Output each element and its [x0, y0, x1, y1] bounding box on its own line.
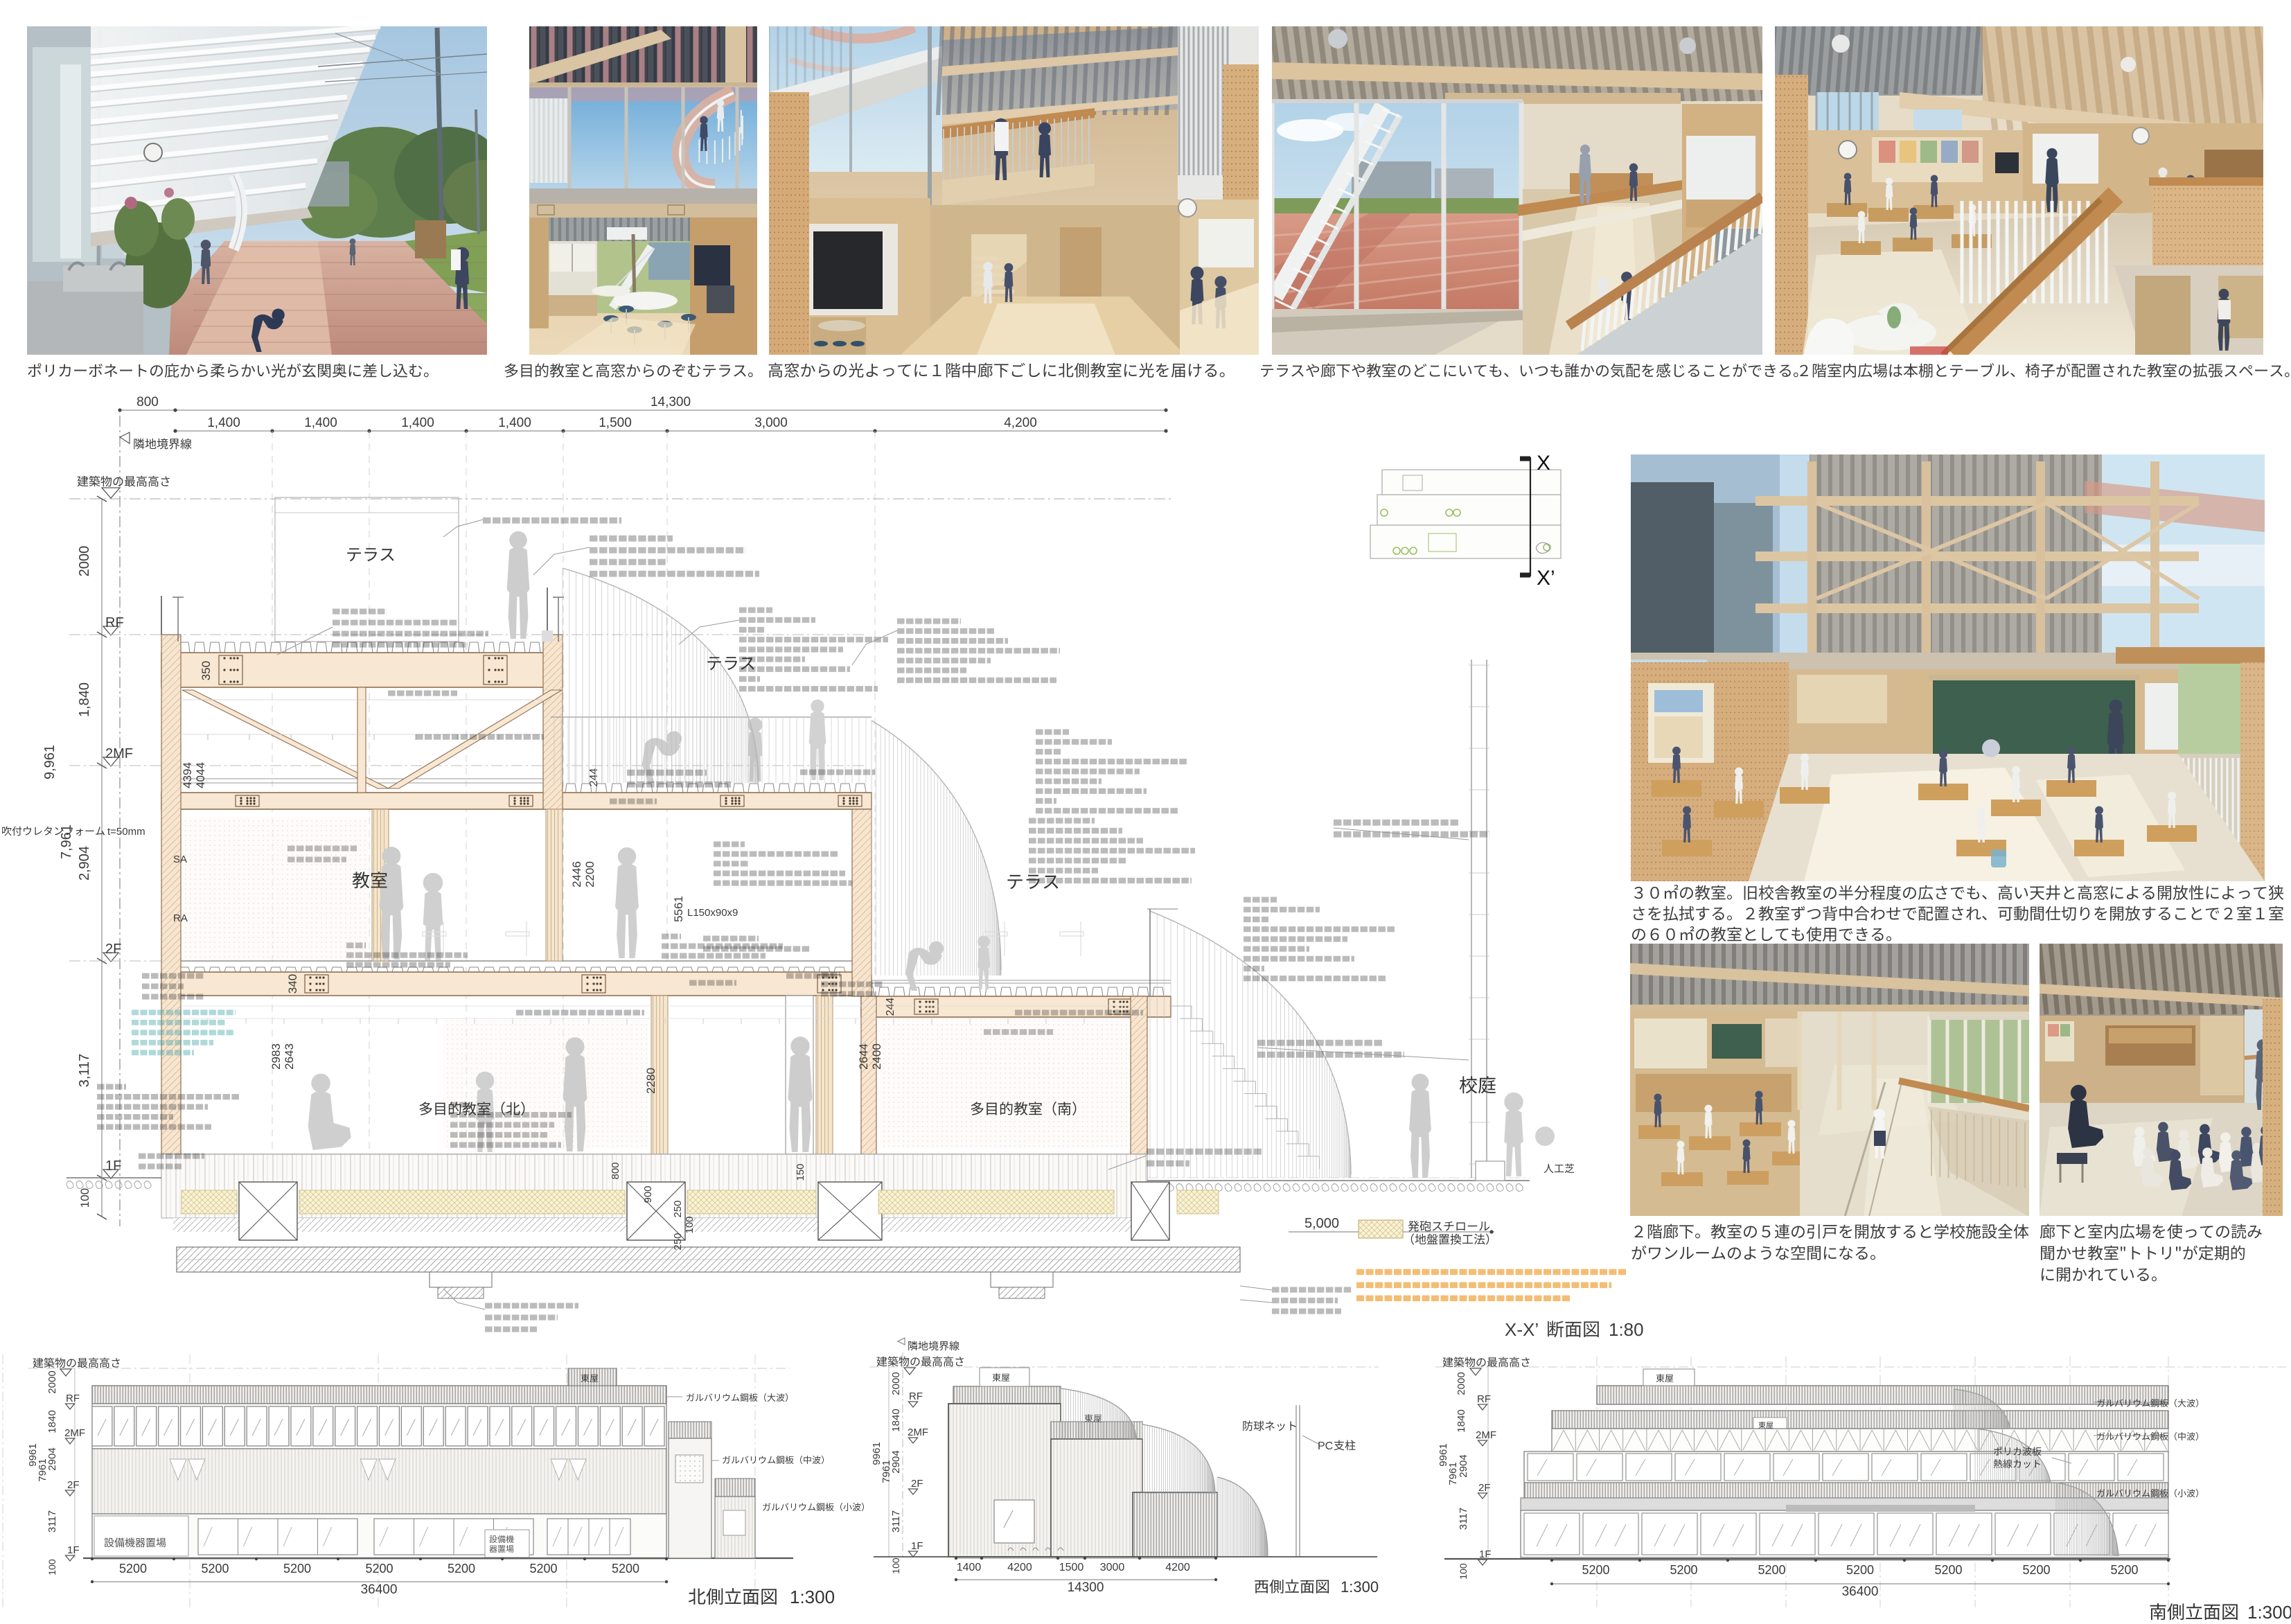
- svg-text:5200: 5200: [119, 1562, 147, 1576]
- svg-text:2F: 2F: [911, 1478, 923, 1490]
- svg-text:2MF: 2MF: [908, 1427, 928, 1438]
- svg-text:4044: 4044: [194, 762, 207, 788]
- svg-text:2644: 2644: [857, 1043, 870, 1070]
- svg-text:2000: 2000: [77, 546, 92, 577]
- svg-text:2643: 2643: [283, 1043, 296, 1070]
- svg-text:2400: 2400: [870, 1043, 883, 1070]
- svg-text:1F: 1F: [105, 1158, 121, 1174]
- svg-text:5200: 5200: [529, 1562, 557, 1576]
- svg-text:100: 100: [1458, 1563, 1469, 1580]
- svg-text:2200: 2200: [583, 861, 596, 888]
- svg-text:36400: 36400: [1842, 1585, 1879, 1599]
- svg-text:2F: 2F: [1478, 1482, 1491, 1494]
- svg-text:2MF: 2MF: [1476, 1429, 1496, 1441]
- svg-text:RA: RA: [173, 912, 188, 924]
- svg-text:RF: RF: [105, 615, 124, 630]
- svg-text:800: 800: [136, 395, 159, 409]
- svg-text:1:300: 1:300: [2247, 1602, 2291, 1621]
- svg-text:14,300: 14,300: [651, 395, 691, 409]
- svg-text:3117: 3117: [890, 1510, 902, 1533]
- svg-text:4200: 4200: [1007, 1562, 1032, 1573]
- svg-text:2F: 2F: [105, 942, 121, 957]
- svg-text:2F: 2F: [67, 1479, 80, 1491]
- svg-text:4394: 4394: [181, 762, 194, 788]
- svg-text:4,200: 4,200: [1004, 416, 1037, 430]
- svg-text:2000: 2000: [46, 1370, 58, 1393]
- svg-text:RF: RF: [1477, 1393, 1491, 1405]
- svg-text:1,400: 1,400: [304, 416, 337, 430]
- svg-text:3000: 3000: [1100, 1562, 1125, 1573]
- svg-text:2904: 2904: [890, 1450, 902, 1473]
- svg-text:2000: 2000: [1456, 1372, 1467, 1395]
- svg-text:3,117: 3,117: [77, 1054, 92, 1088]
- svg-text:t=50mm: t=50mm: [107, 826, 145, 838]
- svg-text:1,840: 1,840: [77, 682, 92, 717]
- svg-text:SA: SA: [173, 854, 187, 865]
- svg-text:14300: 14300: [1068, 1580, 1104, 1595]
- svg-text:900: 900: [642, 1185, 654, 1203]
- svg-text:1400: 1400: [957, 1562, 982, 1573]
- svg-text:250: 250: [672, 1200, 684, 1217]
- svg-text:1,400: 1,400: [401, 416, 434, 430]
- svg-text:800: 800: [610, 1162, 621, 1179]
- svg-text:5200: 5200: [2110, 1563, 2138, 1577]
- svg-text:1840: 1840: [46, 1410, 58, 1433]
- svg-text:PC: PC: [1318, 1440, 1333, 1452]
- svg-text:100: 100: [46, 1559, 58, 1576]
- svg-text:5200: 5200: [1582, 1563, 1609, 1577]
- svg-text:RF: RF: [66, 1393, 80, 1404]
- svg-text:4200: 4200: [1165, 1562, 1190, 1573]
- svg-text:1,500: 1,500: [599, 416, 632, 430]
- svg-text:X’: X’: [1537, 567, 1555, 590]
- svg-text:1F: 1F: [911, 1540, 923, 1552]
- svg-text:2MF: 2MF: [105, 746, 133, 761]
- svg-text:5200: 5200: [365, 1562, 393, 1576]
- svg-text:100: 100: [684, 1216, 696, 1233]
- svg-text:350: 350: [200, 661, 213, 680]
- svg-text:1:80: 1:80: [1609, 1319, 1644, 1340]
- svg-text:1500: 1500: [1059, 1562, 1084, 1573]
- svg-text:100: 100: [78, 1188, 91, 1208]
- svg-text:3,000: 3,000: [754, 416, 788, 430]
- svg-text:5561: 5561: [672, 896, 685, 922]
- svg-text:5200: 5200: [1934, 1563, 1962, 1577]
- svg-text:250: 250: [672, 1233, 684, 1250]
- svg-text:5200: 5200: [612, 1562, 639, 1576]
- svg-text:5200: 5200: [1758, 1563, 1785, 1577]
- svg-text:2280: 2280: [644, 1068, 657, 1094]
- svg-text:5,000: 5,000: [1304, 1216, 1339, 1231]
- svg-text:RF: RF: [909, 1391, 923, 1402]
- svg-text:X-X’: X-X’: [1505, 1319, 1539, 1340]
- svg-text:2MF: 2MF: [64, 1427, 85, 1439]
- svg-text:5200: 5200: [1846, 1563, 1874, 1577]
- svg-text:2000: 2000: [890, 1372, 902, 1395]
- svg-text:5200: 5200: [2022, 1563, 2050, 1577]
- svg-text:3117: 3117: [46, 1510, 58, 1533]
- svg-text:244: 244: [885, 998, 896, 1016]
- svg-text:2446: 2446: [570, 861, 583, 888]
- svg-text:X: X: [1537, 452, 1550, 475]
- svg-text:100: 100: [890, 1557, 901, 1574]
- svg-text:3117: 3117: [1458, 1508, 1469, 1530]
- svg-text:5200: 5200: [448, 1562, 475, 1576]
- svg-text:150: 150: [795, 1163, 806, 1181]
- svg-text:1:300: 1:300: [1341, 1578, 1379, 1596]
- svg-text:L150x90x9: L150x90x9: [687, 907, 738, 919]
- svg-text:2983: 2983: [269, 1043, 283, 1070]
- svg-text:340: 340: [286, 974, 299, 994]
- svg-text:1,400: 1,400: [498, 416, 531, 430]
- svg-text:2904: 2904: [1458, 1454, 1469, 1477]
- svg-text:1840: 1840: [1456, 1409, 1467, 1432]
- svg-text:1840: 1840: [890, 1409, 902, 1431]
- svg-text:244: 244: [588, 768, 600, 787]
- svg-text:2,904: 2,904: [77, 846, 92, 881]
- svg-text:5200: 5200: [283, 1562, 311, 1576]
- svg-text:1F: 1F: [67, 1544, 80, 1556]
- svg-text:1:300: 1:300: [790, 1587, 835, 1607]
- svg-text:36400: 36400: [361, 1582, 398, 1597]
- svg-text:2904: 2904: [46, 1447, 58, 1470]
- svg-text:5200: 5200: [201, 1562, 229, 1576]
- svg-text:9,961: 9,961: [42, 745, 58, 779]
- svg-text:1,400: 1,400: [207, 416, 240, 430]
- svg-text:5200: 5200: [1670, 1563, 1697, 1577]
